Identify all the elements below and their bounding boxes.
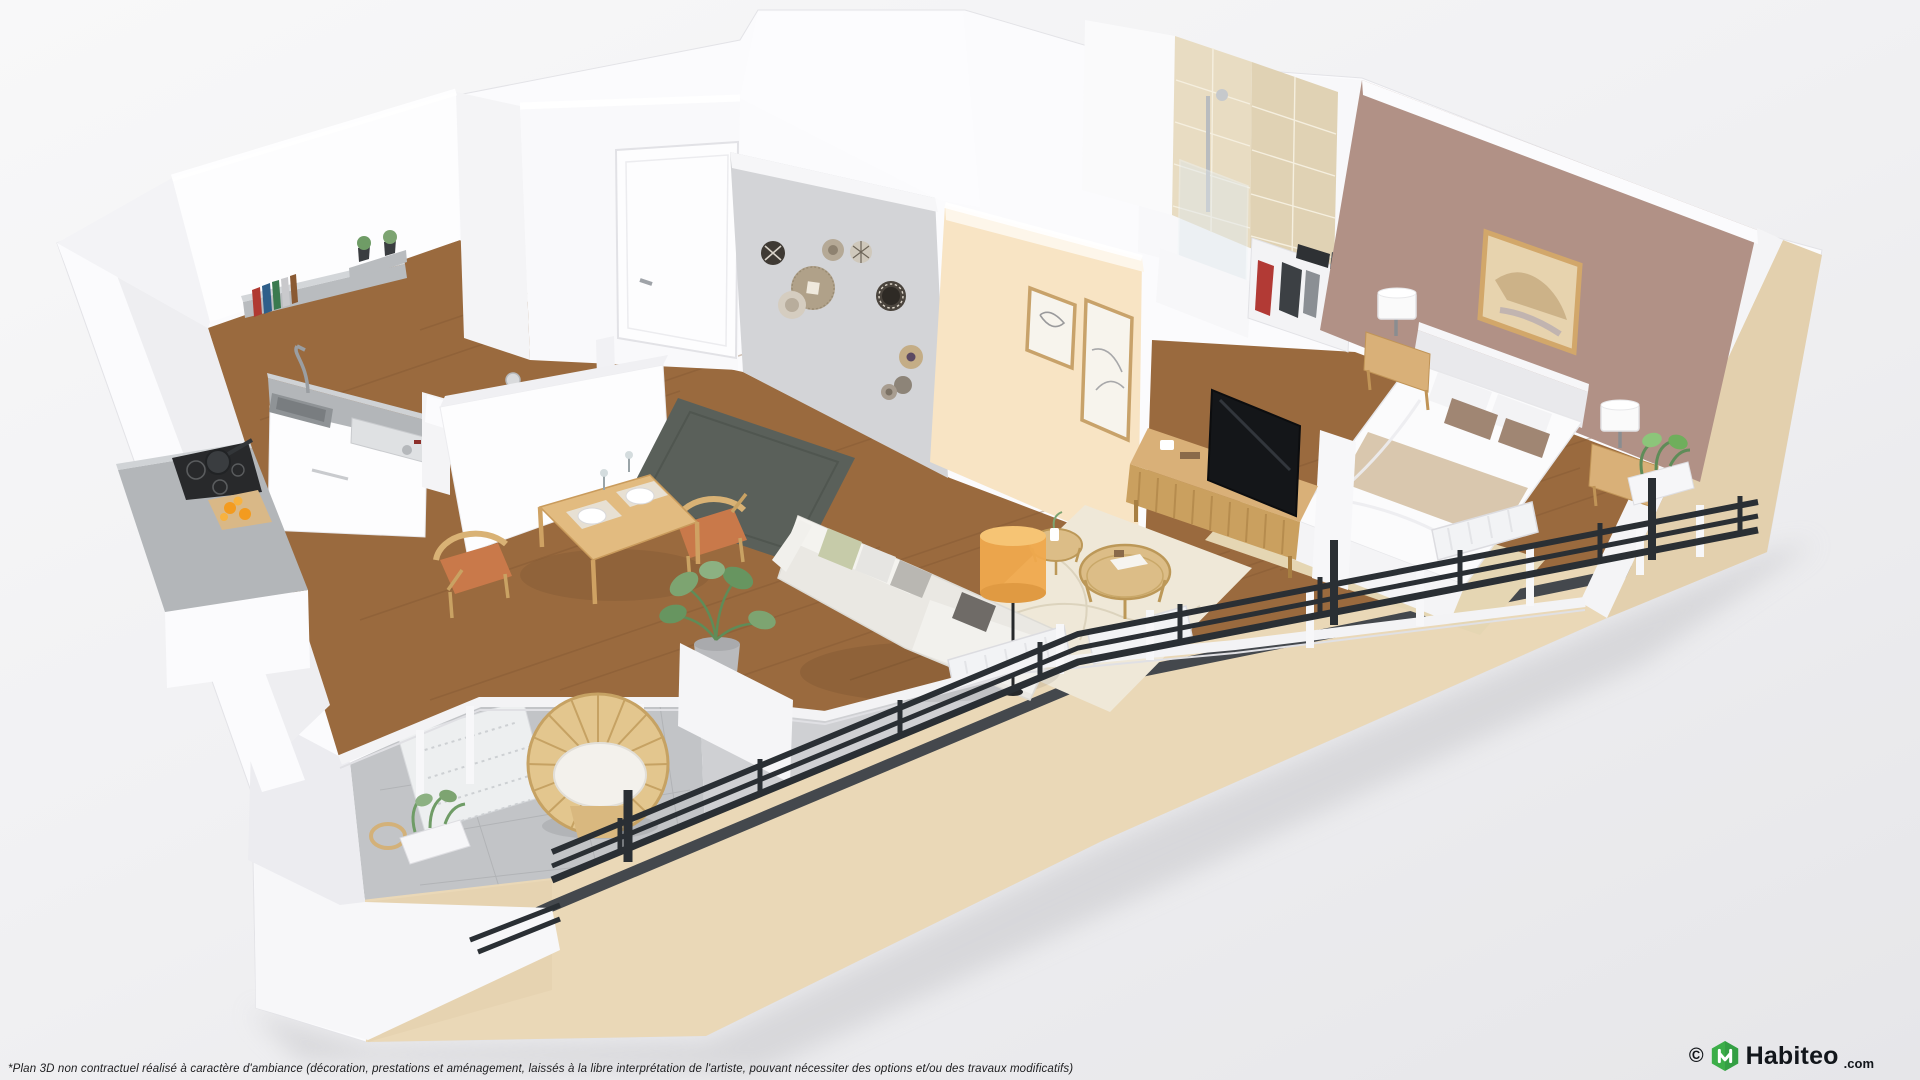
entrance-door: [616, 142, 738, 358]
habiteo-logo: © Habiteo.com: [1689, 1039, 1874, 1073]
brand-tld: .com: [1844, 1056, 1874, 1073]
cooking-pan: [206, 450, 230, 474]
pillar-wall: [456, 92, 530, 360]
decor-vase: [1160, 440, 1174, 450]
place-setting: [578, 508, 606, 524]
copyright-symbol: ©: [1689, 1046, 1704, 1066]
apartment-3d-render: *Plan 3D non contractuel réalisé à carac…: [0, 0, 1920, 1080]
floor-plan-svg: [0, 0, 1920, 1080]
shower-head: [1216, 89, 1228, 101]
place-setting-2: [626, 488, 654, 504]
disclaimer-text: *Plan 3D non contractuel réalisé à carac…: [8, 1063, 1073, 1075]
hanging-garment-dark: [1279, 262, 1302, 318]
decor-books: [1180, 452, 1200, 459]
vase: [1050, 528, 1059, 541]
brand-name: Habiteo: [1746, 1044, 1839, 1069]
habiteo-hexagon-icon: [1709, 1039, 1741, 1073]
